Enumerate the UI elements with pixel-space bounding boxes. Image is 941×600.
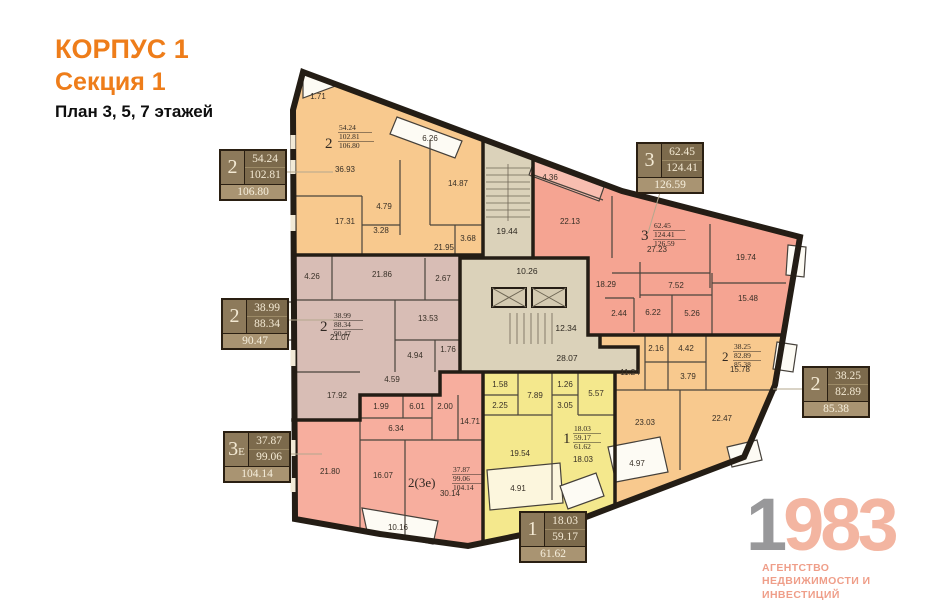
room-area-label: 2.25 bbox=[492, 401, 508, 410]
core-area-label: 12.34 bbox=[555, 323, 577, 333]
balcony-area-label: 10.16 bbox=[388, 523, 409, 532]
apartment-type-number: 2(3е) bbox=[408, 475, 435, 490]
room-area-label: 4.42 bbox=[678, 344, 694, 353]
total-area-balcony: 61.62 bbox=[521, 546, 585, 561]
room-area-label: 14.87 bbox=[448, 179, 469, 188]
callout-type: 3 bbox=[638, 144, 662, 177]
room-area-label: 18.03 bbox=[573, 455, 594, 464]
room-area-label: 21.86 bbox=[372, 270, 393, 279]
total-area-balcony: 85.38 bbox=[734, 360, 751, 369]
room-area-label: 36.93 bbox=[335, 165, 356, 174]
total-area: 124.41 bbox=[662, 160, 702, 176]
total-area: 102.81 bbox=[339, 132, 360, 141]
callout-values: 38.99 88.34 bbox=[247, 300, 287, 333]
apartment-type-number: 1 bbox=[563, 431, 571, 447]
room-area-label: 1.76 bbox=[440, 345, 456, 354]
callout-apartment-3-right-top[interactable]: 3 62.45 124.41 126.59 bbox=[636, 142, 704, 194]
room-area-label: 5.57 bbox=[588, 389, 604, 398]
callout-apartment-2-bottom-right[interactable]: 2 38.25 82.89 85.38 bbox=[802, 366, 870, 418]
callout-values: 54.24 102.81 bbox=[245, 151, 285, 184]
floor-plan-page: КОРПУС 1 Секция 1 План 3, 5, 7 этажей bbox=[0, 0, 941, 600]
living-area: 38.99 bbox=[247, 301, 287, 316]
room-area-label: 17.92 bbox=[327, 391, 348, 400]
apartment-type-number: 2 bbox=[325, 136, 333, 152]
room-area-label: 21.80 bbox=[320, 467, 341, 476]
living-area: 38.25 bbox=[828, 369, 868, 384]
total-area: 82.89 bbox=[828, 384, 868, 400]
total-area-balcony: 90.47 bbox=[223, 333, 287, 348]
room-area-label: 2.44 bbox=[611, 309, 627, 318]
balcony-area-label: 6.26 bbox=[422, 134, 438, 143]
balcony-area-label: 4.91 bbox=[510, 484, 526, 493]
callout-values: 62.45 124.41 bbox=[662, 144, 702, 177]
room-area-label: 1.99 bbox=[373, 402, 389, 411]
room-area-label: 19.54 bbox=[510, 449, 531, 458]
callout-values: 38.25 82.89 bbox=[828, 368, 868, 401]
room-area-label: 11.24 bbox=[620, 368, 640, 377]
room-area-label: 21.95 bbox=[434, 243, 455, 252]
living-area: 37.87 bbox=[249, 434, 289, 449]
total-area-balcony: 104.14 bbox=[225, 466, 289, 481]
callout-type: 2 bbox=[221, 151, 245, 184]
living-area: 62.45 bbox=[662, 145, 702, 160]
callout-type: 1 bbox=[521, 513, 545, 546]
total-area: 59.17 bbox=[574, 433, 591, 442]
total-area: 99.06 bbox=[453, 474, 470, 483]
callout-apartment-1-bottom-center[interactable]: 1 18.03 59.17 61.62 bbox=[519, 511, 587, 563]
room-area-label: 2.67 bbox=[435, 274, 451, 283]
room-area-label: 3.28 bbox=[373, 226, 389, 235]
room-area-label: 5.26 bbox=[684, 309, 700, 318]
core-area-label: 19.44 bbox=[496, 226, 518, 236]
room-area-label: 14.71 bbox=[460, 417, 481, 426]
room-area-label: 1.58 bbox=[492, 380, 508, 389]
room-area-label: 2.00 bbox=[437, 402, 453, 411]
total-area: 59.17 bbox=[545, 529, 585, 545]
apartment-type-number: 2 bbox=[320, 319, 328, 335]
room-area-label: 4.94 bbox=[407, 351, 423, 360]
total-area: 82.89 bbox=[734, 351, 751, 360]
room-area-label: 1.26 bbox=[557, 380, 573, 389]
living-area: 62.45 bbox=[654, 221, 671, 230]
room-area-label: 4.59 bbox=[384, 375, 400, 384]
callout-values: 37.87 99.06 bbox=[249, 433, 289, 466]
total-area-balcony: 126.59 bbox=[638, 177, 702, 192]
room-area-label: 22.13 bbox=[560, 217, 581, 226]
living-area: 18.03 bbox=[574, 424, 591, 433]
room-area-label: 3.68 bbox=[460, 234, 476, 243]
room-area-label: 13.53 bbox=[418, 314, 439, 323]
living-area: 37.87 bbox=[453, 465, 470, 474]
balcony-area-label: 4.36 bbox=[542, 173, 558, 182]
living-area: 18.03 bbox=[545, 514, 585, 529]
callout-values: 18.03 59.17 bbox=[545, 513, 585, 546]
agency-logo: 1983 АГЕНТСТВО НЕДВИЖИМОСТИ И ИНВЕСТИЦИЙ bbox=[746, 492, 938, 600]
total-area: 88.34 bbox=[334, 320, 351, 329]
apartment-type-number: 3 bbox=[641, 228, 649, 244]
balcony-area-label: 4.26 bbox=[304, 272, 320, 281]
room-area-label: 19.74 bbox=[736, 253, 757, 262]
total-area-balcony: 126.59 bbox=[654, 239, 675, 248]
room-area-label: 7.52 bbox=[668, 281, 684, 290]
room-area-label: 15.48 bbox=[738, 294, 759, 303]
total-area-balcony: 104.14 bbox=[453, 483, 474, 492]
living-area: 38.25 bbox=[734, 342, 751, 351]
total-area-balcony: 90.47 bbox=[334, 329, 351, 338]
room-area-label: 6.22 bbox=[645, 308, 661, 317]
living-area: 54.24 bbox=[245, 152, 285, 167]
callout-apartment-2-left-middle[interactable]: 2 38.99 88.34 90.47 bbox=[221, 298, 289, 350]
total-area: 99.06 bbox=[249, 449, 289, 465]
callout-type: 3Е bbox=[225, 433, 249, 466]
total-area-balcony: 61.62 bbox=[574, 442, 591, 451]
room-area-label: 23.03 bbox=[635, 418, 656, 427]
total-area: 102.81 bbox=[245, 167, 285, 183]
core-area-label: 28.07 bbox=[556, 353, 578, 363]
room-area-label: 18.29 bbox=[596, 280, 617, 289]
room-area-label: 16.07 bbox=[373, 471, 394, 480]
balcony-area-label: 4.97 bbox=[629, 459, 645, 468]
callout-apartment-3e-bottom-left[interactable]: 3Е 37.87 99.06 104.14 bbox=[223, 431, 291, 483]
callout-type: 2 bbox=[223, 300, 247, 333]
room-area-label: 2.16 bbox=[648, 344, 664, 353]
core-area-label: 10.26 bbox=[516, 266, 538, 276]
total-area-balcony: 106.80 bbox=[339, 141, 360, 150]
room-area-label: 3.05 bbox=[557, 401, 573, 410]
room-area-label: 4.79 bbox=[376, 202, 392, 211]
callout-apartment-2-top-left[interactable]: 2 54.24 102.81 106.80 bbox=[219, 149, 287, 201]
callout-type: 2 bbox=[804, 368, 828, 401]
room-area-label: 22.47 bbox=[712, 414, 733, 423]
logo-tagline: АГЕНТСТВО НЕДВИЖИМОСТИ И ИНВЕСТИЦИЙ bbox=[746, 562, 938, 600]
living-area: 38.99 bbox=[334, 311, 351, 320]
total-area-balcony: 85.38 bbox=[804, 401, 868, 416]
room-area-label: 6.01 bbox=[409, 402, 425, 411]
balcony-area-label: 1.71 bbox=[310, 92, 326, 101]
living-area: 54.24 bbox=[339, 123, 356, 132]
apartment-type-number: 2 bbox=[722, 349, 729, 364]
total-area: 88.34 bbox=[247, 316, 287, 332]
room-area-label: 3.79 bbox=[680, 372, 696, 381]
total-area-balcony: 106.80 bbox=[221, 184, 285, 199]
total-area: 124.41 bbox=[654, 230, 675, 239]
room-area-label: 7.89 bbox=[527, 391, 543, 400]
room-area-label: 6.34 bbox=[388, 424, 404, 433]
logo-year: 1983 bbox=[746, 492, 938, 559]
room-area-label: 17.31 bbox=[335, 217, 356, 226]
